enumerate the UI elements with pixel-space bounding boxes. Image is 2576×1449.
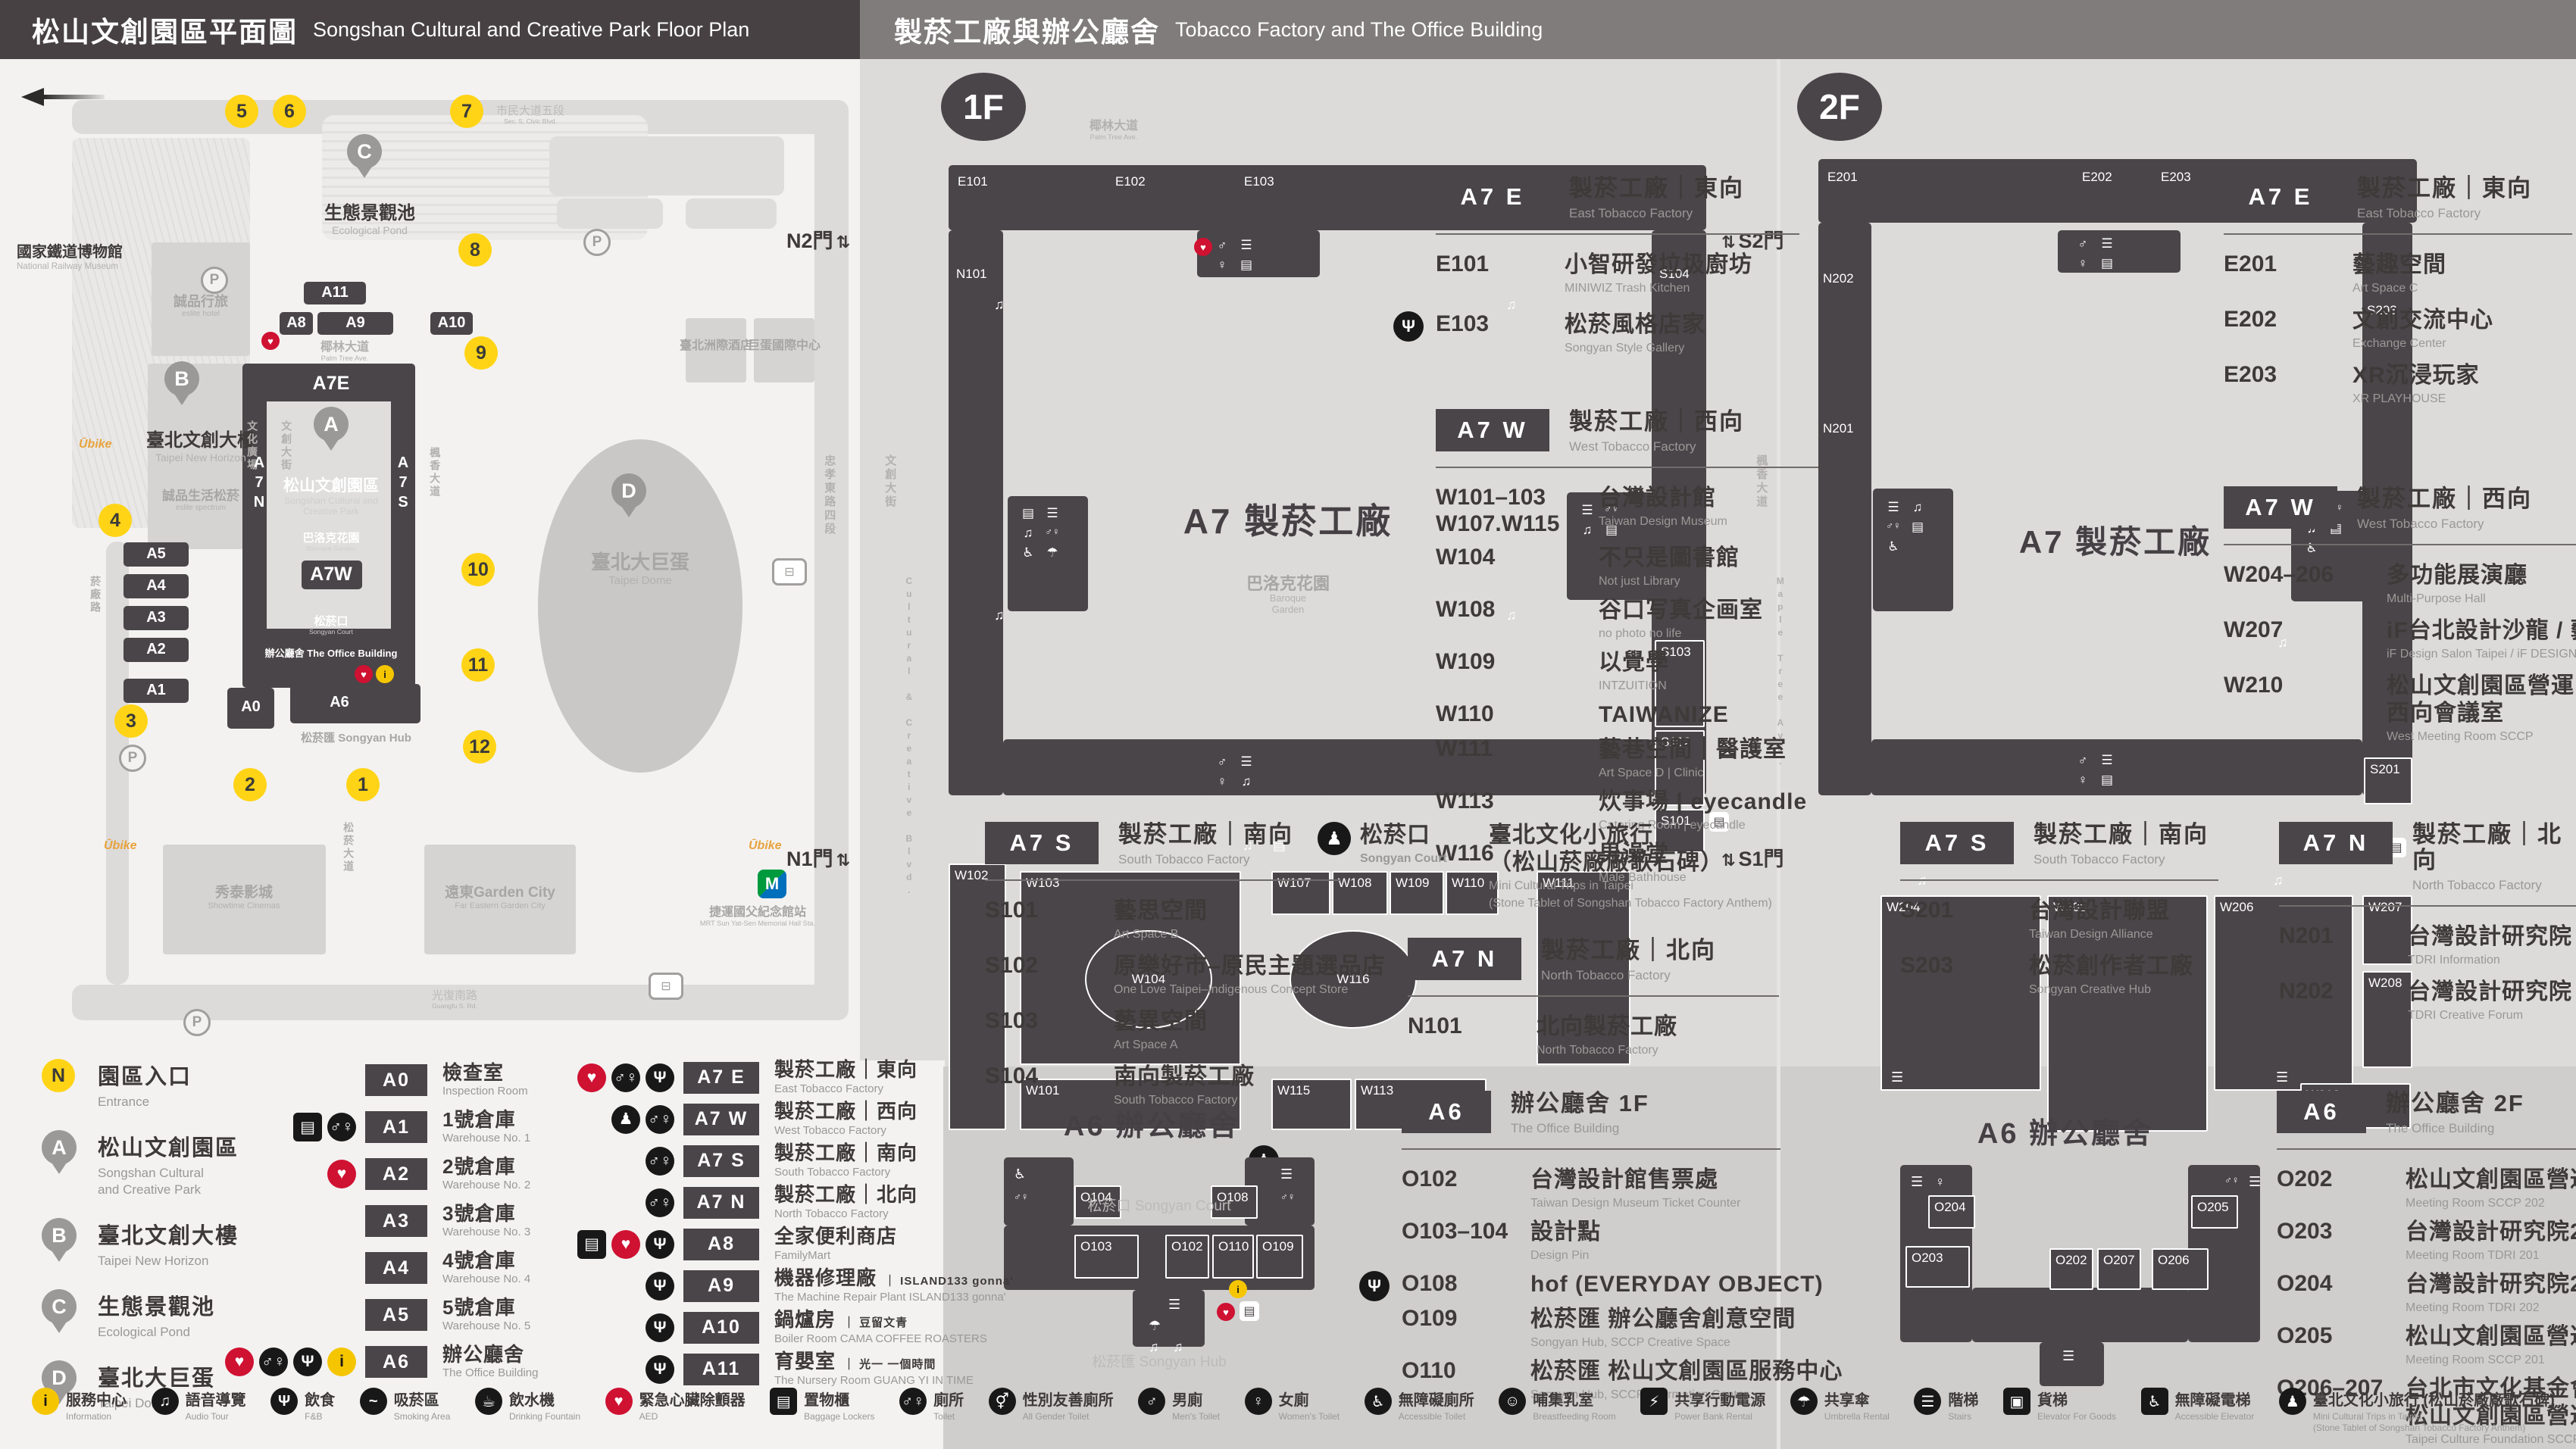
row-name-zh: 台灣設計館 bbox=[1599, 485, 1727, 512]
section-divider bbox=[2224, 233, 2572, 235]
toilet-icon: ♂♀ bbox=[2224, 1174, 2240, 1185]
legend-building-A8: ▤♥ΨA8全家便利商店FamilyMart bbox=[561, 1223, 1061, 1265]
building-sub-zh: ｜ 光一 一個時間 bbox=[843, 1358, 936, 1371]
row-code: O204 bbox=[2277, 1271, 2406, 1316]
row-name-en: Art Space B bbox=[1114, 927, 1208, 942]
row-code: S201 bbox=[1900, 898, 2029, 942]
map-label: A7W bbox=[310, 564, 352, 586]
building-zh: 機器修理廠｜ ISLAND133 gonna' bbox=[774, 1268, 1014, 1288]
information-icon: i bbox=[1229, 1280, 1247, 1298]
row-name-zh: 台灣設計研究院 創意劇場 bbox=[2408, 979, 2576, 1006]
list-row-O202: O202松山文創園區營運中心202會議室Meeting Room SCCP 20… bbox=[2277, 1166, 2576, 1211]
section-title-en: East Tobacco Factory bbox=[1569, 206, 1744, 221]
map-label: 生態景觀池Ecological Pond bbox=[324, 203, 415, 236]
building-zh: 鍋爐房｜ 豆留文青 bbox=[774, 1310, 987, 1330]
label-text: 椰林大道 bbox=[1089, 120, 1138, 133]
map-label: E103 bbox=[1244, 174, 1274, 189]
section-code-badge: A7 S bbox=[985, 822, 1099, 864]
row-name-zh: 設計點 bbox=[1530, 1219, 1601, 1246]
building-en: The Machine Repair Plant ISLAND133 gonna… bbox=[774, 1291, 1014, 1304]
room-O110: O110 bbox=[1212, 1235, 1254, 1279]
section-code-badge: A7 E bbox=[2224, 176, 2337, 218]
section-code-badge: A7 W bbox=[2224, 486, 2337, 529]
room-O109: O109 bbox=[1256, 1235, 1303, 1279]
legend-zh: 臺北文化小旅行 (松山菸廠廠歌石碑) bbox=[2313, 1388, 2555, 1410]
building-en: Boiler Room CAMA COFFEE ROASTERS bbox=[774, 1333, 987, 1345]
row-body: 北向製菸工廠North Tobacco Factory bbox=[1537, 1013, 1677, 1058]
legend-water: ☕飲水機Drinking Fountain bbox=[475, 1388, 580, 1422]
locker-icon: ▤ bbox=[1018, 506, 1038, 521]
row-name-zh: 台灣設計館售票處 bbox=[1530, 1166, 1740, 1194]
section-title: 製菸工廠｜北向North Tobacco Factory bbox=[1541, 938, 1716, 983]
row-body: 藝異空間Art Space A bbox=[1114, 1008, 1208, 1053]
label-text: 松山文創園區 bbox=[283, 477, 379, 495]
row-body: 松山文創園區營運中心201會議室Meeting Room SCCP 201 bbox=[2406, 1323, 2576, 1368]
metro-logo: M bbox=[758, 870, 786, 898]
room-O203: O203 bbox=[1905, 1246, 1970, 1288]
badge-wrap: B bbox=[42, 1218, 77, 1253]
label-text-en: Showtime Cinemas bbox=[208, 901, 280, 911]
row-body: iF台北設計沙龍 / 藝符設計iF Design Salon Taipei / … bbox=[2387, 617, 2576, 662]
location-pin-B: B bbox=[42, 1218, 77, 1253]
row-name-zh: 松山文創園區營運中心 西向會議室 bbox=[2387, 673, 2576, 727]
building-code-badge: A1 bbox=[365, 1111, 427, 1143]
row-name-zh: 台灣設計聯盟 bbox=[2029, 898, 2170, 925]
row-code: N201 bbox=[2279, 923, 2408, 968]
label-text: A7S bbox=[395, 454, 411, 514]
legend-en: F&B bbox=[305, 1411, 335, 1422]
row-name-en: South Tobacco Factory bbox=[1114, 1093, 1255, 1108]
list-row-W101–103: W101–103 W107.W115台灣設計館Taiwan Design Mus… bbox=[1436, 485, 1818, 537]
bus-stop-icon: ⊟ bbox=[649, 973, 683, 1000]
label-text-en: National Railway Museum bbox=[17, 261, 123, 271]
map-label: 忠孝東路四段 bbox=[823, 454, 836, 536]
map-block bbox=[549, 136, 784, 195]
court-item-en2: (Stone Tablet of Songshan Tobacco Factor… bbox=[1489, 896, 1772, 911]
legend-building-A7 E: ♥♂♀ΨA7 E製菸工廠｜東向East Tobacco Factory bbox=[561, 1057, 1061, 1098]
map-pin-A: A bbox=[314, 407, 349, 442]
entrance-2: 2 bbox=[233, 768, 267, 801]
room-O204: O204 bbox=[1928, 1195, 1975, 1229]
label-text: 文創大街 bbox=[280, 420, 292, 472]
entrance-3: 3 bbox=[114, 704, 148, 738]
section-header: A7 N製菸工廠｜北向North Tobacco Factory bbox=[2279, 822, 2576, 893]
row-name-zh: 原樂好市–原民主題選品店 bbox=[1114, 953, 1386, 980]
list-row-W108: W108谷口写真企画室no photo no life bbox=[1436, 597, 1818, 642]
facility-icon-cluster: ♂☰♀▤ bbox=[2073, 236, 2117, 271]
section-title-en: North Tobacco Factory bbox=[1541, 968, 1716, 983]
building-text: 辦公廳舍The Office Building bbox=[442, 1344, 538, 1379]
legend-accesselev: ♿無障礙電梯Accessible Elevator bbox=[2141, 1388, 2255, 1422]
row-name-en: Taipei Culture Foundation SCCP Managemen… bbox=[2406, 1432, 2576, 1449]
loc-zh: 臺北文創大樓 bbox=[98, 1218, 239, 1250]
fnb-icon: Ψ bbox=[1393, 311, 1424, 342]
section-header: A7 S製菸工廠｜南向South Tobacco Factory bbox=[985, 822, 1341, 867]
label-text: 松菸匯 Songyan Hub bbox=[1092, 1354, 1226, 1370]
stairs-icon: ☰ bbox=[1236, 754, 1256, 770]
map-label: 遠東Garden CityFar Eastern Garden City bbox=[445, 885, 555, 911]
building-zh: 製菸工廠｜西向 bbox=[774, 1101, 918, 1122]
mini-trip-icon: ♟ bbox=[1318, 822, 1351, 855]
powerbank-icon: ⚡ bbox=[1640, 1388, 1668, 1415]
aed-icon: ♥ bbox=[1194, 238, 1212, 256]
section-title: 製菸工廠｜北向North Tobacco Factory bbox=[2412, 822, 2576, 893]
fnb-icon: Ψ bbox=[1359, 1271, 1390, 1301]
building-en: South Tobacco Factory bbox=[774, 1166, 918, 1179]
legend-en: Power Bank Rental bbox=[1674, 1411, 1765, 1422]
aed-icon: ♥ bbox=[1217, 1303, 1235, 1321]
room-O202: O202 bbox=[2049, 1248, 2093, 1290]
list-row-S101: S101藝思空間Art Space B bbox=[985, 898, 1341, 942]
row-name-zh: 北向製菸工廠 bbox=[1537, 1013, 1677, 1041]
row-name-en: Songyan Style Gallery bbox=[1565, 341, 1705, 356]
row-name-zh: 以覺學 bbox=[1599, 649, 1669, 676]
section-divider bbox=[985, 879, 1341, 881]
floor-plan-poster: 松山文創園區平面圖 Songshan Cultural and Creative… bbox=[0, 0, 2576, 1449]
loc-text: 臺北文創大樓Taipei New Horizon bbox=[98, 1218, 239, 1269]
men-icon: ♂ bbox=[2073, 236, 2093, 251]
entrance-12: 12 bbox=[463, 730, 496, 764]
section-code-badge: A7 N bbox=[2279, 822, 2393, 864]
row-name-zh: 藝巷空間｜醫護室 bbox=[1599, 736, 1787, 764]
legend-text: 緊急心臟除顫器AED bbox=[639, 1388, 746, 1422]
entrance-10: 10 bbox=[461, 553, 495, 586]
locker-icon: ▤ bbox=[2097, 256, 2117, 271]
row-body: 多功能展演廳Multi-Purpose Hall bbox=[2387, 562, 2528, 607]
label-text-en: Baroque Garden bbox=[302, 545, 359, 552]
accessible-icon: ♿ bbox=[1365, 1388, 1392, 1415]
badge-wrap: C bbox=[42, 1289, 77, 1324]
row-name-en: Meeting Room SCCP 202 bbox=[2406, 1196, 2576, 1211]
legend-zh: 無障礙廁所 bbox=[1399, 1388, 1474, 1410]
men-icon: ♂ bbox=[1138, 1388, 1165, 1415]
fnb-icon: Ψ bbox=[293, 1348, 322, 1376]
row-name-en: Songyan Hub, SCCP Creative Space bbox=[1530, 1335, 1796, 1351]
legend-info: i服務中心Information bbox=[32, 1388, 127, 1422]
building-text: 5號倉庫Warehouse No. 5 bbox=[442, 1298, 530, 1332]
legend-en: Baggage Lockers bbox=[804, 1411, 874, 1422]
loc-en: Taipei New Horizon bbox=[98, 1253, 239, 1269]
label-text: E202 bbox=[2082, 170, 2112, 184]
list-row-N202: N202台灣設計研究院 創意劇場TDRI Creative Forum bbox=[2279, 979, 2576, 1023]
row-code: W109 bbox=[1436, 649, 1599, 694]
map-label: 松菸口Songyan Court bbox=[309, 615, 353, 635]
label-text: 誠品行旅 bbox=[174, 294, 228, 309]
legend-text: 語音導覽Audio Tour bbox=[186, 1388, 246, 1422]
label-text: 椰林大道 bbox=[320, 341, 369, 354]
legend-fnb: Ψ飲食F&B bbox=[270, 1388, 335, 1422]
map-block bbox=[1972, 1288, 2188, 1342]
map-label: E102 bbox=[1115, 174, 1146, 189]
fnb-icon: Ψ bbox=[646, 1272, 674, 1301]
label-text-en: Baroque Garden bbox=[1246, 593, 1330, 615]
row-body: 松山文創園區營運中心 西向會議室West Meeting Room SCCP bbox=[2387, 673, 2576, 745]
row-name-en: West Meeting Room SCCP bbox=[2387, 729, 2576, 745]
label-text: N202 bbox=[1823, 271, 1854, 286]
list-row-W210: W210松山文創園區營運中心 西向會議室West Meeting Room SC… bbox=[2224, 673, 2576, 745]
legend-zh: 緊急心臟除顫器 bbox=[639, 1388, 746, 1410]
room-O103: O103 bbox=[1074, 1235, 1139, 1279]
row-name-en: Meeting Room SCCP 201 bbox=[2406, 1353, 2576, 1368]
row-code: S103 bbox=[985, 1008, 1114, 1053]
smoking-icon: ~ bbox=[360, 1388, 387, 1415]
row-code: O205 bbox=[2277, 1323, 2406, 1368]
section-title: 辦公廳舍 1FThe Office Building bbox=[1511, 1091, 1649, 1136]
entrance-9: 9 bbox=[464, 336, 498, 370]
locker-icon: ▤ bbox=[1240, 1301, 1259, 1321]
building-code-badge: A10 bbox=[683, 1312, 759, 1344]
stairs-icon: ☰ bbox=[1884, 500, 1903, 515]
label-text-en: Far Eastern Garden City bbox=[445, 901, 555, 911]
list-row-O203: O203台灣設計研究院201會議室Meeting Room TDRI 201 bbox=[2277, 1219, 2576, 1263]
section-divider bbox=[2279, 905, 2576, 907]
trip-icon: ♟ bbox=[2279, 1388, 2306, 1415]
umbrella-icon: ☂ bbox=[1149, 1318, 1161, 1334]
toilet-icon: ♂♀ bbox=[611, 1063, 640, 1092]
building-text: 3號倉庫Warehouse No. 3 bbox=[442, 1204, 530, 1238]
building-zh: 4號倉庫 bbox=[442, 1251, 530, 1271]
label-text: E101 bbox=[958, 174, 988, 189]
building-text: 鍋爐房｜ 豆留文青Boiler Room CAMA COFFEE ROASTER… bbox=[774, 1310, 987, 1344]
row-name-zh: iF台北設計沙龍 / 藝符設計 bbox=[2387, 617, 2576, 645]
legend-text: 無障礙電梯Accessible Elevator bbox=[2175, 1388, 2255, 1422]
row-code: S102 bbox=[985, 953, 1114, 998]
parking-icon: P bbox=[183, 1009, 211, 1036]
row-name-en: XR PLAYHOUSE bbox=[2352, 392, 2480, 407]
building-zh: 製菸工廠｜南向 bbox=[774, 1143, 918, 1163]
building-code-badge: A3 bbox=[365, 1205, 427, 1237]
building-text: 2號倉庫Warehouse No. 2 bbox=[442, 1157, 530, 1191]
row-body: 原樂好市–原民主題選品店One Love Taipei–Indigenous C… bbox=[1114, 953, 1386, 998]
building-text: 檢查室Inspection Room bbox=[442, 1063, 528, 1098]
map-building-label-A6: A6 bbox=[330, 694, 349, 711]
row-name-zh: 松山文創園區營運中心201會議室 bbox=[2406, 1323, 2576, 1351]
map-label: A7 製菸工廠 bbox=[1183, 501, 1393, 542]
legend-en: Breastfeeding Room bbox=[1533, 1411, 1615, 1422]
section-title-zh: 製菸工廠｜南向 bbox=[1118, 822, 1293, 848]
women-icon: ♀ bbox=[1935, 1174, 1946, 1190]
building-zh: 5號倉庫 bbox=[442, 1298, 530, 1318]
legend-text: 服務中心Information bbox=[66, 1388, 127, 1422]
label-text: E103 bbox=[1244, 174, 1274, 189]
row-body: 松菸風格店家Songyan Style Gallery bbox=[1565, 311, 1705, 356]
legend-text: 共享傘Umbrella Rental bbox=[1824, 1388, 1890, 1422]
aed-icon: ♥ bbox=[261, 332, 280, 350]
label-text: 松菸匯 Songyan Hub bbox=[301, 732, 411, 745]
section-code-badge: A6 bbox=[1402, 1091, 1491, 1133]
map-building-label-A2: A2 bbox=[146, 641, 166, 658]
legend-text: 吸菸區Smoking Area bbox=[394, 1388, 451, 1422]
stairs-icon: ☰ bbox=[2276, 1070, 2288, 1085]
men-icon: ♂ bbox=[1212, 754, 1232, 770]
room-O206: O206 bbox=[2152, 1248, 2209, 1290]
label-text: 遠東Garden City bbox=[445, 885, 555, 901]
row-code: O203 bbox=[2277, 1219, 2406, 1263]
building-zh: 製菸工廠｜東向 bbox=[774, 1060, 918, 1080]
building-zh: 2號倉庫 bbox=[442, 1157, 530, 1177]
aed-icon: ♥ bbox=[611, 1230, 640, 1259]
legend-zh: 吸菸區 bbox=[394, 1388, 451, 1410]
audio-icon: ♫ bbox=[1908, 500, 1927, 515]
label-text: 臺北洲際酒店 bbox=[680, 339, 752, 352]
list-row-O108: ΨO108hof (EVERYDAY OBJECT) bbox=[1402, 1271, 1780, 1298]
row-body: 松菸創作者工廠Songyan Creative Hub bbox=[2029, 953, 2193, 998]
building-code-badge: A7 S bbox=[683, 1145, 759, 1177]
aed-icon: ♥ bbox=[605, 1388, 633, 1415]
building-icons: ♟♂♀ bbox=[561, 1105, 674, 1134]
section-title-en: West Tobacco Factory bbox=[2357, 517, 2532, 532]
legend-cargo: ▣貨梯Elevator For Goods bbox=[2003, 1388, 2116, 1422]
women-icon: ♀ bbox=[2073, 773, 2093, 788]
room-O205: O205 bbox=[2191, 1195, 2238, 1229]
map-block bbox=[1818, 223, 1871, 795]
section-songyan-court: ♟松菸口Songyan Court臺北文化小旅行 （松山菸廠廠歌石碑）Mini … bbox=[1360, 822, 1784, 926]
building-zh: 1號倉庫 bbox=[442, 1110, 530, 1130]
row-name-zh: 南向製菸工廠 bbox=[1114, 1063, 1255, 1091]
section-title-en: The Office Building bbox=[1511, 1121, 1649, 1136]
building-icons: ▤♥Ψ bbox=[561, 1230, 674, 1259]
legend-trip: ♟臺北文化小旅行 (松山菸廠廠歌石碑)Mini Cultural Trips i… bbox=[2279, 1388, 2555, 1434]
section-1f-west-tobacco-factory: A7 W製菸工廠｜西向West Tobacco FactoryW101–103 … bbox=[1436, 409, 1818, 893]
list-row-E202: E202文創交流中心Exchange Center bbox=[2224, 307, 2572, 351]
accessible-icon: ♿ bbox=[1018, 545, 1038, 561]
toilet-icon: ♂♀ bbox=[1043, 526, 1062, 541]
legend-text: 階梯Stairs bbox=[1948, 1388, 1978, 1422]
row-code: E202 bbox=[2224, 307, 2352, 351]
facility-icon-cluster: ☰♫♂♀▤♿ bbox=[1884, 500, 1927, 554]
loc-en: Ecological Pond bbox=[98, 1324, 215, 1341]
row-name-en: TDRI Creative Forum bbox=[2408, 1008, 2576, 1023]
building-icons: ♂♀ bbox=[561, 1188, 674, 1217]
map-building-label-A11: A11 bbox=[321, 284, 349, 301]
row-name-zh: 台灣設計研究院202會議室 bbox=[2406, 1271, 2576, 1298]
row-name-zh: 台灣設計研究院201會議室 bbox=[2406, 1219, 2576, 1246]
building-icons: ♂♀ bbox=[561, 1147, 674, 1176]
map-label: 松菸大道 bbox=[342, 822, 355, 873]
legend-text: 貨梯Elevator For Goods bbox=[2037, 1388, 2116, 1422]
label-text: 文創大街 bbox=[883, 454, 896, 509]
row-name-zh: 松山文創園區營運中心202會議室 bbox=[2406, 1166, 2576, 1194]
audio-icon: ♫ bbox=[1149, 1339, 1159, 1355]
map-label: 文創大街 bbox=[280, 420, 292, 472]
legend-building-A9: ΨA9機器修理廠｜ ISLAND133 gonna'The Machine Re… bbox=[561, 1265, 1061, 1307]
row-name-en: Taiwan Design Museum bbox=[1599, 514, 1727, 529]
legend-women: ♀女廁Women's Toilet bbox=[1245, 1388, 1340, 1422]
room-O102: O102 bbox=[1165, 1235, 1209, 1279]
toilet-icon: ♂♀ bbox=[646, 1188, 674, 1217]
building-en: Warehouse No. 4 bbox=[442, 1273, 530, 1285]
row-body: 台灣設計研究院 服務台TDRI Information bbox=[2408, 923, 2576, 968]
label-text: 國家鐵道博物館 bbox=[17, 244, 123, 261]
legend-en: Accessible Toilet bbox=[1399, 1411, 1474, 1422]
row-name-zh: 松菸風格店家 bbox=[1565, 311, 1705, 339]
legend-text: 飲水機Drinking Fountain bbox=[509, 1388, 580, 1422]
building-en: Warehouse No. 3 bbox=[442, 1226, 530, 1238]
section-title-zh: 製菸工廠｜西向 bbox=[2357, 486, 2532, 512]
water-icon: ☕ bbox=[475, 1388, 502, 1415]
map-label: N202 bbox=[1823, 271, 1854, 286]
row-body: 設計點Design Pin bbox=[1530, 1219, 1601, 1263]
building-code-badge: A5 bbox=[365, 1299, 427, 1331]
label-text: N101 bbox=[956, 267, 987, 281]
court-zh: 松菸口 bbox=[1360, 822, 1489, 849]
building-en: Warehouse No. 5 bbox=[442, 1320, 530, 1332]
label-text: 臺北文創大樓 bbox=[146, 430, 255, 451]
stairs-icon: ☰ bbox=[1236, 238, 1256, 253]
legend-zh: 女廁 bbox=[1279, 1388, 1340, 1410]
section-title-zh: 辦公廳舍 1F bbox=[1511, 1091, 1649, 1116]
label-text: 光復南路 bbox=[432, 989, 477, 1002]
legend-building-A7 S: ♂♀A7 S製菸工廠｜南向South Tobacco Factory bbox=[561, 1140, 1061, 1182]
map-label: Cultural & Creative Blvd. bbox=[903, 576, 914, 898]
map-label: 巴洛克花園Baroque Garden bbox=[302, 532, 359, 552]
map-label: 巨蛋國際中心 bbox=[748, 339, 821, 353]
building-en: Warehouse No. 1 bbox=[442, 1132, 530, 1145]
women-icon: ♀ bbox=[2073, 256, 2093, 271]
gate-N2門: N2門⇅ bbox=[786, 224, 853, 254]
fnb-icon: Ψ bbox=[646, 1230, 674, 1259]
section-2f-south-tobacco-factory: A7 S製菸工廠｜南向South Tobacco FactoryS201台灣設計… bbox=[1900, 822, 2218, 1008]
stairs-icon: ☰ bbox=[1911, 1174, 1923, 1190]
legend-en: Information bbox=[66, 1411, 127, 1422]
bus-stop-icon: ⊟ bbox=[772, 558, 807, 586]
legend-en: Accessible Elevator bbox=[2175, 1411, 2255, 1422]
row-code: N101 bbox=[1408, 1013, 1537, 1058]
row-code: O103–104 bbox=[1402, 1219, 1530, 1263]
map-label: 松菸匯 Songyan Hub bbox=[301, 732, 411, 745]
legend-building-A11: ΨA11育嬰室｜ 光一 一個時間The Nursery Room GUANG Y… bbox=[561, 1348, 1061, 1390]
building-en: East Tobacco Factory bbox=[774, 1083, 918, 1095]
section-title: 製菸工廠｜南向South Tobacco Factory bbox=[1118, 822, 1293, 867]
list-row-N201: N201台灣設計研究院 服務台TDRI Information bbox=[2279, 923, 2576, 968]
row-body: 藝思空間Art Space B bbox=[1114, 898, 1208, 942]
section-title-en: North Tobacco Factory bbox=[2412, 878, 2576, 893]
row-body: 藝趣空間Art Space C bbox=[2352, 251, 2446, 296]
map-building-label-A1: A1 bbox=[146, 682, 166, 699]
building-text: 機器修理廠｜ ISLAND133 gonna'The Machine Repai… bbox=[774, 1268, 1014, 1303]
map-label: E101 bbox=[958, 174, 988, 189]
section-title-zh: 辦公廳舍 2F bbox=[2386, 1091, 2524, 1116]
map-label: 辦公廳舍 The Office Building bbox=[265, 648, 398, 660]
row-body: 台灣設計聯盟Taiwan Design Alliance bbox=[2029, 898, 2170, 942]
section-code-badge: A7 N bbox=[1408, 938, 1521, 980]
room-S201: S201 bbox=[2364, 757, 2412, 804]
section-title: 製菸工廠｜西向West Tobacco Factory bbox=[1569, 409, 1744, 454]
facility-icon-cluster: ▤☰♫♂♀♿☂ bbox=[1018, 506, 1062, 561]
building-text: 4號倉庫Warehouse No. 4 bbox=[442, 1251, 530, 1285]
row-name-en: Art Space A bbox=[1114, 1038, 1208, 1053]
map-building-label-A4: A4 bbox=[146, 577, 166, 595]
map-label: A7E bbox=[313, 373, 350, 395]
legend-en: Women's Toilet bbox=[1279, 1411, 1340, 1422]
allgender-icon: ⚥ bbox=[989, 1388, 1016, 1415]
map-label: 光復南路Guangfu S. Rd. bbox=[432, 989, 477, 1010]
section-header: A7 W製菸工廠｜西向West Tobacco Factory bbox=[1436, 409, 1818, 454]
row-name-zh: 松菸匯 松山文創園區服務中心 bbox=[1530, 1358, 1843, 1385]
row-name-zh: 松菸匯 辦公廳舍創意空間 bbox=[1530, 1306, 1796, 1333]
legend-men: ♂男廁Men's Toilet bbox=[1138, 1388, 1220, 1422]
label-text: A7E bbox=[313, 373, 350, 394]
aed-icon: ♥ bbox=[327, 1160, 356, 1188]
toilet-icon: ♂♀ bbox=[327, 1113, 356, 1141]
info-icon: i bbox=[32, 1388, 59, 1415]
audio-icon: ♫ bbox=[994, 607, 1005, 623]
section-header: A6辦公廳舍 2FThe Office Building bbox=[2277, 1091, 2576, 1136]
section-title: 製菸工廠｜東向East Tobacco Factory bbox=[2357, 176, 2532, 221]
row-name-en: TDRI Information bbox=[2408, 953, 2576, 968]
section-title-zh: 製菸工廠｜南向 bbox=[2034, 822, 2209, 848]
map-building-label-A8: A8 bbox=[286, 314, 306, 332]
